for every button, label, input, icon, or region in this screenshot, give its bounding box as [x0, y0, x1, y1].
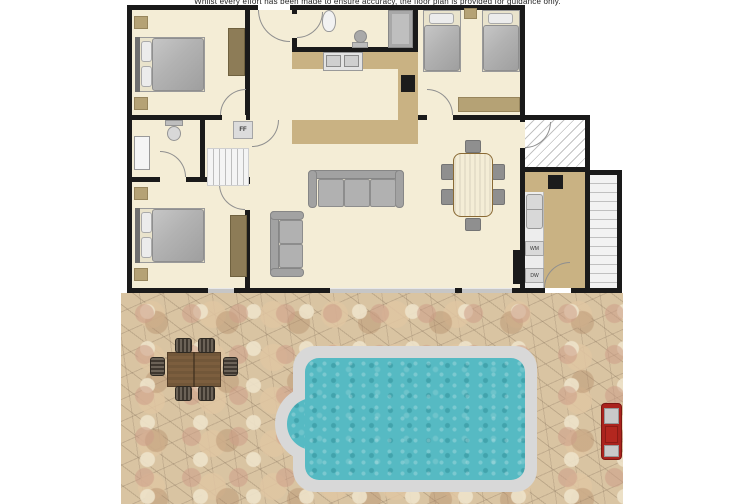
- outdoor-chair: [175, 386, 192, 401]
- dining-chair: [492, 189, 505, 205]
- external-stairs: [590, 175, 617, 288]
- door-opening: [545, 288, 571, 293]
- sink: [322, 10, 336, 32]
- bedside-table: [134, 268, 148, 281]
- sofa-back: [308, 170, 404, 179]
- sliding-patio-door: [330, 288, 455, 293]
- duvet: [424, 25, 460, 71]
- pillow: [141, 41, 152, 62]
- hob: [548, 175, 563, 189]
- toilet: [354, 30, 367, 43]
- floorplan-image: Whilst every effort has been made to ens…: [0, 0, 755, 504]
- outdoor-table-divider: [193, 352, 195, 387]
- duvet: [152, 209, 204, 262]
- fridge: [526, 194, 543, 229]
- shower: [134, 136, 150, 170]
- bedside-table: [134, 97, 148, 110]
- dishwasher: DW: [525, 268, 544, 283]
- pillow: [141, 66, 152, 87]
- washing-machine-label: WM: [530, 246, 539, 252]
- internal-stairs: [207, 148, 249, 186]
- dining-table: [453, 153, 493, 217]
- dining-chair: [492, 164, 505, 180]
- fridge-freezer: FF: [233, 121, 253, 139]
- door-opening: [160, 177, 186, 182]
- pillow: [141, 212, 152, 233]
- sofa-arm: [270, 211, 304, 220]
- seat-cushion: [279, 220, 303, 244]
- shower-tray: [392, 14, 409, 44]
- pool-water: [305, 358, 525, 480]
- wall: [200, 120, 205, 182]
- sliding-patio-door: [462, 288, 512, 293]
- outdoor-chair: [175, 338, 192, 353]
- desk: [458, 97, 520, 112]
- sink-basin: [326, 55, 341, 67]
- toilet: [167, 126, 181, 141]
- sofa-arm: [270, 268, 304, 277]
- outdoor-chair: [198, 338, 215, 353]
- headboard: [135, 208, 140, 263]
- wall: [127, 5, 132, 293]
- outdoor-chair: [150, 357, 165, 376]
- wall: [525, 115, 590, 120]
- door-opening: [245, 184, 250, 210]
- oven: [401, 75, 415, 92]
- fridge-divider: [526, 209, 543, 210]
- bbq-grill-bottom: [604, 445, 619, 457]
- bedside-table: [464, 8, 477, 19]
- wardrobe: [228, 28, 245, 76]
- wall: [585, 172, 590, 288]
- headboard: [135, 37, 140, 92]
- seat-cushion: [279, 244, 303, 268]
- sofa-arm: [395, 170, 404, 208]
- bedside-table: [134, 187, 148, 200]
- wall: [525, 167, 590, 172]
- outdoor-chair: [223, 357, 238, 376]
- window: [208, 288, 234, 293]
- dishwasher-label: DW: [530, 273, 538, 279]
- pillow: [141, 237, 152, 258]
- door-opening: [427, 115, 453, 120]
- seat-cushion: [370, 179, 396, 207]
- pillow: [429, 13, 454, 24]
- outdoor-chair: [198, 386, 215, 401]
- bedside-table: [134, 16, 148, 29]
- sofa-arm: [308, 170, 317, 208]
- bbq-grill-top: [604, 408, 619, 424]
- bbq-lid: [605, 426, 618, 443]
- kitchen-counter: [292, 120, 418, 144]
- wardrobe: [230, 215, 247, 277]
- wall: [585, 120, 590, 167]
- seat-cushion: [344, 179, 370, 207]
- seat-cushion: [318, 179, 344, 207]
- wall: [617, 175, 622, 288]
- dining-chair: [465, 218, 481, 231]
- duvet: [152, 38, 204, 91]
- fridge-freezer-label: FF: [239, 127, 246, 133]
- dining-chair: [465, 140, 481, 153]
- duvet: [483, 25, 519, 71]
- patio-door-leaf: [513, 250, 521, 284]
- pillow: [488, 13, 513, 24]
- sink-basin: [344, 55, 359, 67]
- washing-machine: WM: [525, 241, 544, 256]
- door-opening: [222, 115, 246, 120]
